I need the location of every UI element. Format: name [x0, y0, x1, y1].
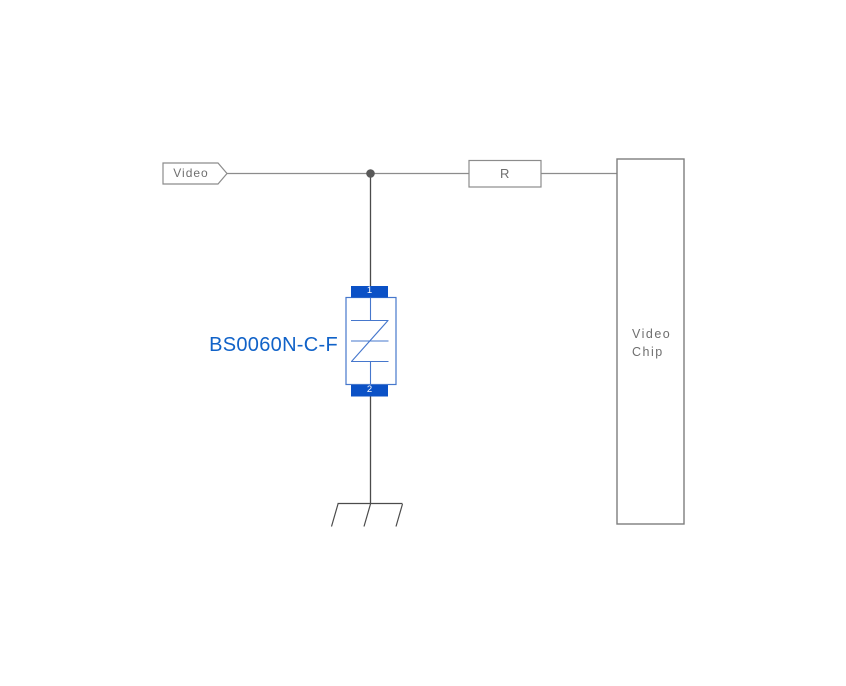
chip-label-line1: Video: [632, 326, 671, 344]
ground-icon: [332, 504, 403, 527]
schematic-drawing: [0, 0, 846, 686]
pin-1-number: 1: [351, 285, 388, 297]
resistor-label: R: [469, 160, 541, 187]
chip-label: Video Chip: [632, 326, 671, 361]
chip-label-line2: Chip: [632, 344, 671, 362]
pin-2-number: 2: [351, 384, 388, 396]
junction-dot: [366, 169, 375, 178]
net-label: Video: [163, 163, 219, 184]
schematic-canvas: Video R Video Chip BS0060N-C-F 1 2: [0, 0, 846, 686]
component-part-number: BS0060N-C-F: [150, 332, 338, 358]
